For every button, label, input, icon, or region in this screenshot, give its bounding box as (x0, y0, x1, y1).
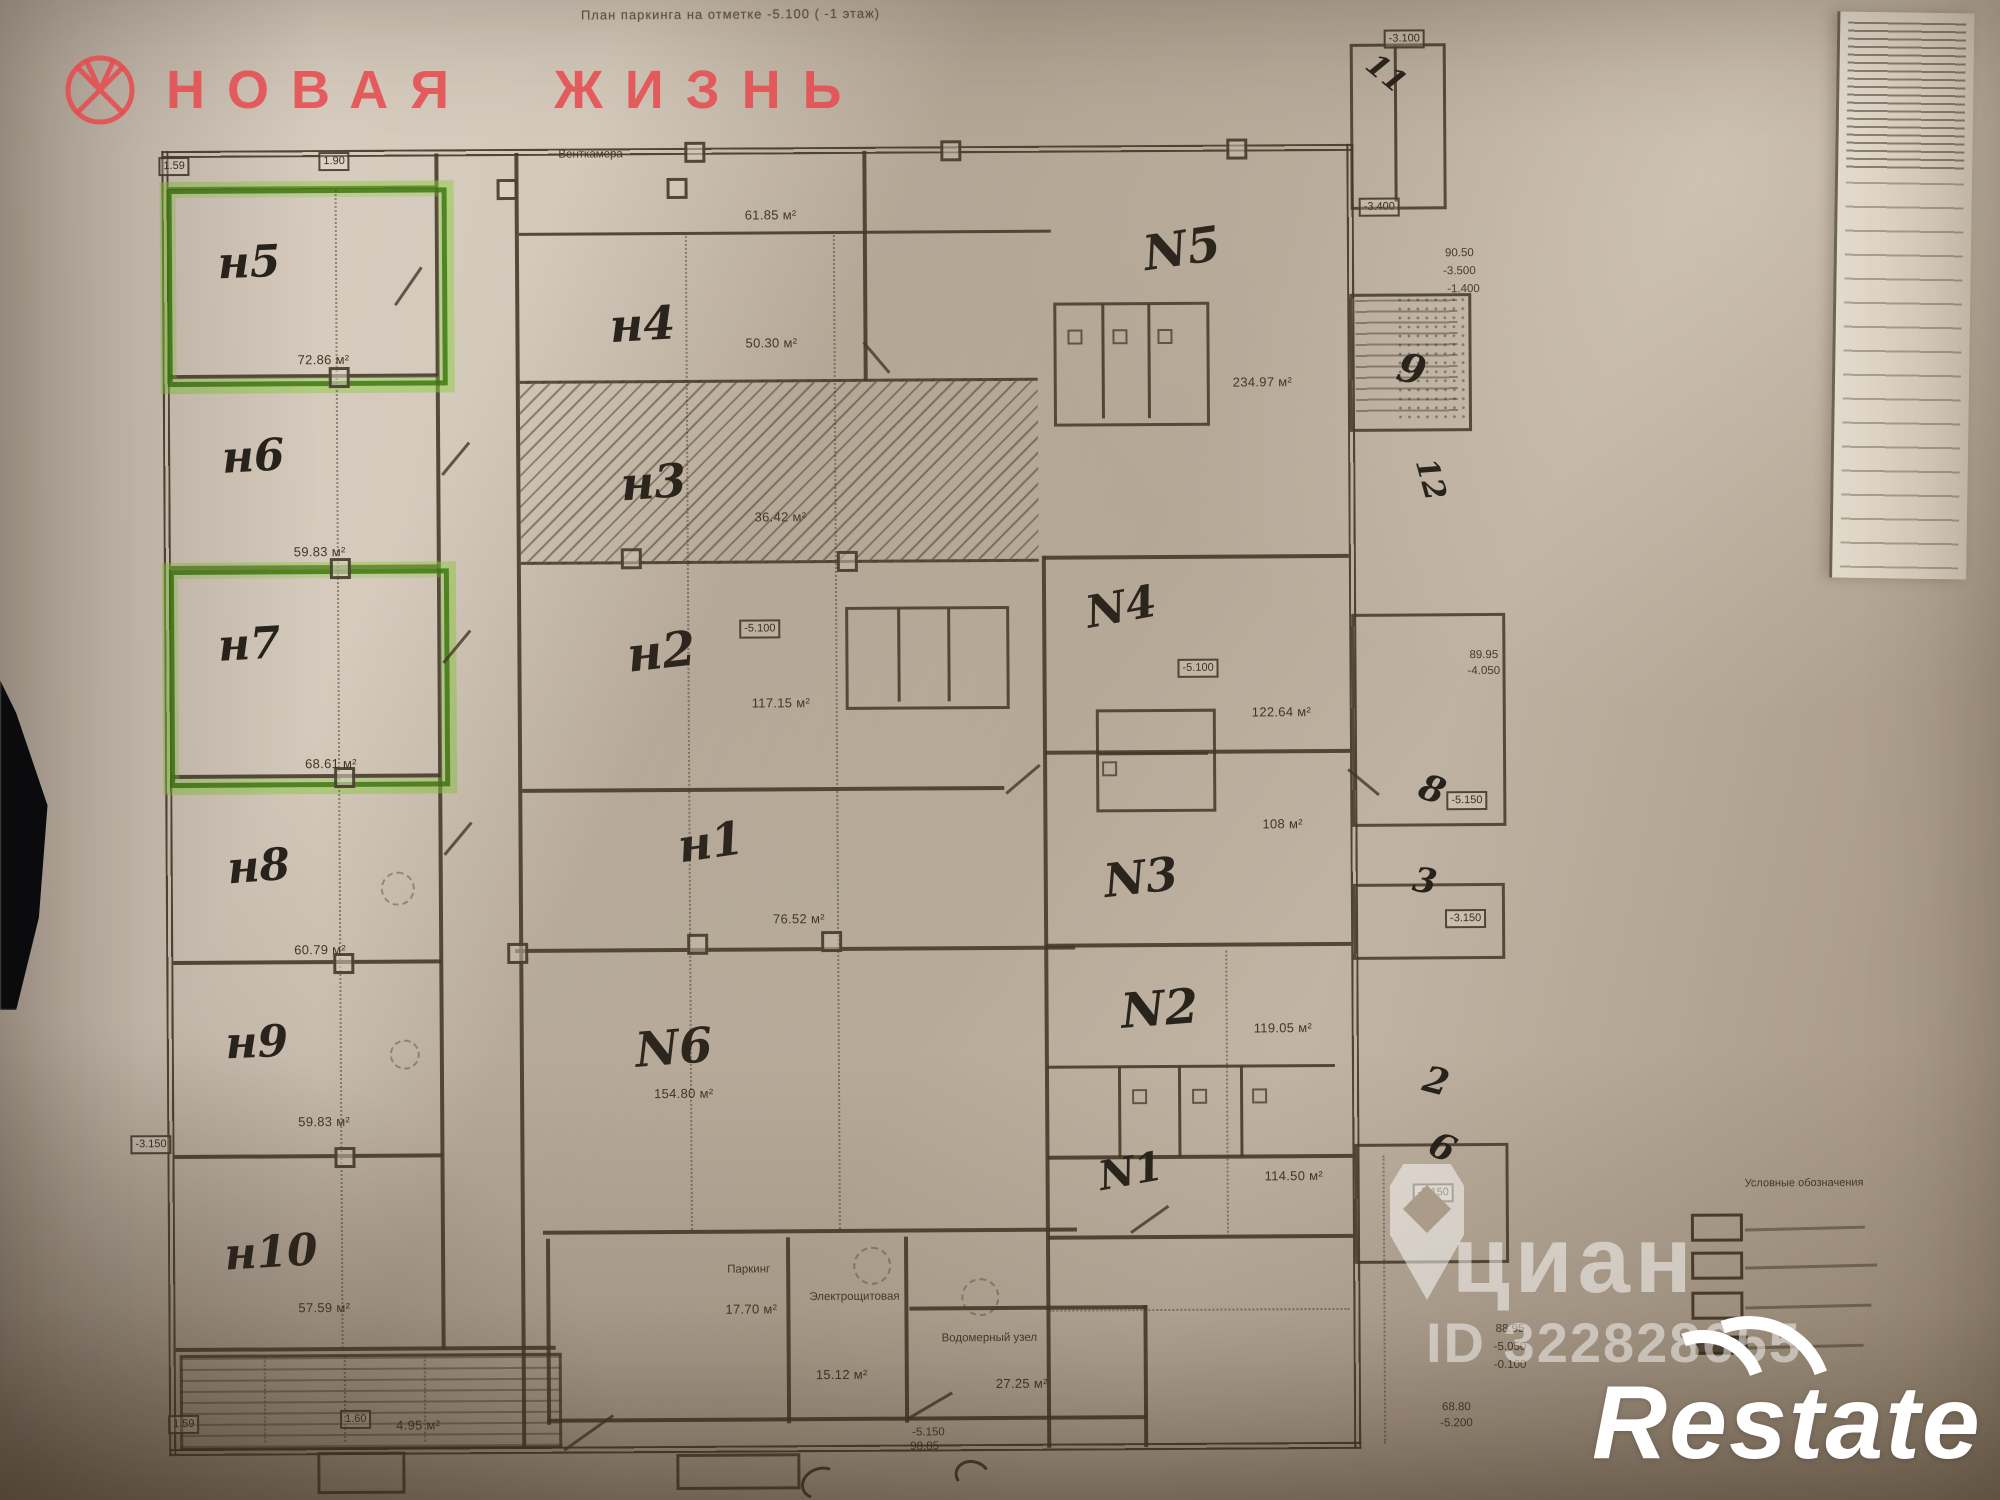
room-area: 57.59 м² (298, 1300, 350, 1315)
grid-line (1225, 951, 1229, 1237)
room-area: 68.61 м² (305, 756, 357, 771)
wall (176, 1346, 556, 1352)
column-marker (684, 142, 705, 163)
room-label-n10: н10 (223, 1224, 319, 1280)
room-area: 122.64 м² (1252, 704, 1311, 719)
wall (1046, 942, 1351, 948)
fixture (1067, 329, 1082, 344)
elevation-box: -5.100 (1177, 659, 1218, 678)
shaft-number: 12 (1408, 455, 1453, 505)
fixture (1192, 1089, 1207, 1104)
fixture (1102, 761, 1117, 776)
column-marker (329, 367, 350, 388)
room-label-n7: н7 (217, 617, 283, 672)
hatched-room-n3 (520, 378, 1039, 565)
legend-swatch (1691, 1251, 1743, 1279)
column-marker (940, 140, 961, 161)
corridor-area: 61.85 м² (745, 207, 797, 222)
elevation-value: 90.50 (1445, 247, 1474, 259)
column-marker (507, 943, 528, 964)
wall (1240, 1067, 1244, 1157)
room-label-n5: н5 (217, 236, 282, 290)
dim-box: -3.150 (130, 1135, 171, 1154)
room-area: 76.52 м² (773, 911, 825, 926)
door-line (908, 1392, 953, 1420)
dim-box: 1.90 (318, 152, 350, 171)
wall (1178, 1067, 1182, 1157)
elevation-box: -3.400 (1359, 198, 1400, 217)
adjacent-sheet (1829, 11, 1974, 579)
fixture (1132, 1089, 1147, 1104)
elevation-value: 88.95 (1496, 1323, 1525, 1335)
elevation-box: -3.100 (1384, 29, 1425, 48)
wall (904, 1237, 909, 1423)
wall (1143, 1305, 1148, 1447)
legend-swatch (1696, 1335, 1748, 1354)
handwriting-mark (796, 1461, 845, 1500)
elevation-box: -3.150 (1445, 909, 1486, 928)
legend-title: Условные обозначения (1745, 1177, 1864, 1190)
column-marker (621, 548, 642, 569)
elevation-value: 89.95 (1469, 649, 1498, 661)
legend-item-line (1746, 1344, 1864, 1350)
fixture (1252, 1088, 1267, 1103)
room-area: 72.86 м² (298, 352, 350, 367)
wall (522, 786, 1004, 793)
room-area: 117.15 м² (752, 695, 810, 710)
room-label-n6: н6 (220, 429, 286, 484)
room-label-N6: N6 (633, 1017, 714, 1079)
column-marker (334, 1147, 355, 1168)
elevation-value: -5.200 (1440, 1417, 1473, 1429)
floorplan-drawing: План паркинга на отметке -5.100 ( -1 эта… (0, 0, 2000, 1500)
fixture (1112, 329, 1127, 344)
plan-title: План паркинга на отметке -5.100 ( -1 эта… (460, 5, 1000, 23)
column-marker (497, 179, 518, 200)
floorplan-photo: План паркинга на отметке -5.100 ( -1 эта… (0, 0, 2000, 1500)
drain-symbol (390, 1040, 420, 1070)
room-label-n3: н3 (619, 453, 688, 512)
elevation-value: -3.500 (1443, 265, 1476, 277)
wall (543, 1228, 1077, 1235)
sheet-table-lines (1846, 22, 1966, 174)
wall (519, 230, 1051, 236)
room-area: 59.83 м² (294, 544, 346, 559)
room-area: 27.25 м² (996, 1376, 1048, 1391)
column-marker (1226, 138, 1247, 159)
room-area: 114.50 м² (1265, 1168, 1323, 1183)
elevation-value: -4.050 (1467, 665, 1500, 677)
room-area: 15.12 м² (816, 1367, 868, 1382)
room-area: 154.80 м² (654, 1086, 713, 1101)
room-name-electrical: Электрощитовая (809, 1291, 899, 1304)
elevation-value: 98.85 (910, 1440, 939, 1452)
room-label-n1: н1 (674, 810, 747, 873)
grid-line (1049, 1308, 1349, 1312)
ventkamera-label: Венткамера (558, 148, 623, 160)
ramp-stairs (180, 1353, 563, 1451)
room-name-water: Водомерный узел (942, 1332, 1038, 1345)
sheet-table-lines (1840, 182, 1964, 570)
legend-item-line (1745, 1226, 1865, 1232)
legend-item-line (1745, 1264, 1877, 1270)
wall (1047, 1064, 1335, 1069)
wall (897, 609, 901, 702)
wall (786, 1237, 791, 1423)
room-area: 50.30 м² (745, 335, 797, 350)
dim-box: 1.59 (158, 157, 190, 176)
room-area: 108 м² (1262, 816, 1302, 831)
column-marker (837, 551, 858, 572)
elevation-value: -5.150 (912, 1426, 945, 1438)
entry-stub (676, 1453, 800, 1490)
elevation-value: -5.050 (1494, 1341, 1527, 1353)
room-area: 234.97 м² (1233, 374, 1292, 389)
fixture (1157, 329, 1172, 344)
legend-swatch (1691, 1213, 1743, 1241)
column-marker (330, 558, 351, 579)
wall (1048, 1234, 1353, 1240)
legend-item-line (1745, 1304, 1871, 1310)
agency-logo-text: НОВАЯ ЖИЗНЬ (166, 59, 863, 121)
column-marker (687, 934, 708, 955)
room-area: 60.79 м² (294, 942, 346, 957)
wall (1042, 556, 1051, 1448)
room-name-parking: Паркинг (727, 1263, 770, 1275)
wall (1044, 554, 1349, 560)
door-line (443, 822, 472, 856)
room-area: 17.70 м² (725, 1301, 777, 1316)
door-line (1130, 1205, 1169, 1234)
wall (173, 959, 441, 965)
elevation-box: -5.100 (739, 619, 780, 638)
elevation-box: -5.150 (1413, 1183, 1454, 1202)
elevation-value: -0.100 (1494, 1359, 1527, 1371)
room-area: 36.42 м² (755, 509, 807, 524)
room-label-N1: N1 (1095, 1142, 1167, 1200)
agency-logo-icon (62, 52, 138, 128)
room-label-n8: н8 (226, 839, 292, 895)
drain-symbol (961, 1278, 999, 1316)
stair-area: 4.95 м² (396, 1417, 440, 1432)
wall (1118, 1067, 1122, 1157)
legend-swatch (1691, 1291, 1743, 1319)
entry-stub (317, 1452, 405, 1495)
room-label-N4: N4 (1082, 576, 1161, 639)
column-marker (821, 931, 842, 952)
elevation-box: -5.150 (1446, 791, 1487, 810)
wc-cluster (1053, 302, 1210, 427)
elevation-value: -1.400 (1447, 283, 1480, 295)
wall (174, 1153, 442, 1159)
shaft-cells (845, 606, 1010, 710)
room-label-n4: н4 (608, 295, 677, 353)
room-area: 119.05 м² (1254, 1020, 1312, 1035)
wall (515, 946, 1075, 953)
elevation-value: 68.80 (1442, 1401, 1471, 1413)
door-line (1005, 764, 1040, 795)
room-label-N5: N5 (1140, 216, 1225, 283)
room-area: 59.83 м² (298, 1114, 350, 1129)
wall (547, 1415, 1147, 1423)
room-label-N2: N2 (1119, 978, 1200, 1040)
room-label-n2: н2 (624, 620, 698, 683)
drain-symbol (381, 872, 415, 906)
room-label-N3: N3 (1101, 846, 1181, 908)
dim-box: 1.59 (168, 1415, 200, 1434)
handwriting-mark (951, 1456, 993, 1494)
room-label-n9: н9 (224, 1016, 289, 1070)
dim-box: 1.60 (340, 1410, 372, 1429)
wall (947, 608, 951, 701)
wall (514, 153, 526, 1448)
door-line (441, 442, 470, 476)
wall (1047, 1154, 1352, 1160)
agency-logo: НОВАЯ ЖИЗНЬ (62, 52, 863, 128)
highlight-room-n7 (169, 568, 450, 788)
shaft-number: 2 (1419, 1058, 1454, 1105)
column-marker (666, 178, 687, 199)
drain-symbol (853, 1247, 891, 1285)
